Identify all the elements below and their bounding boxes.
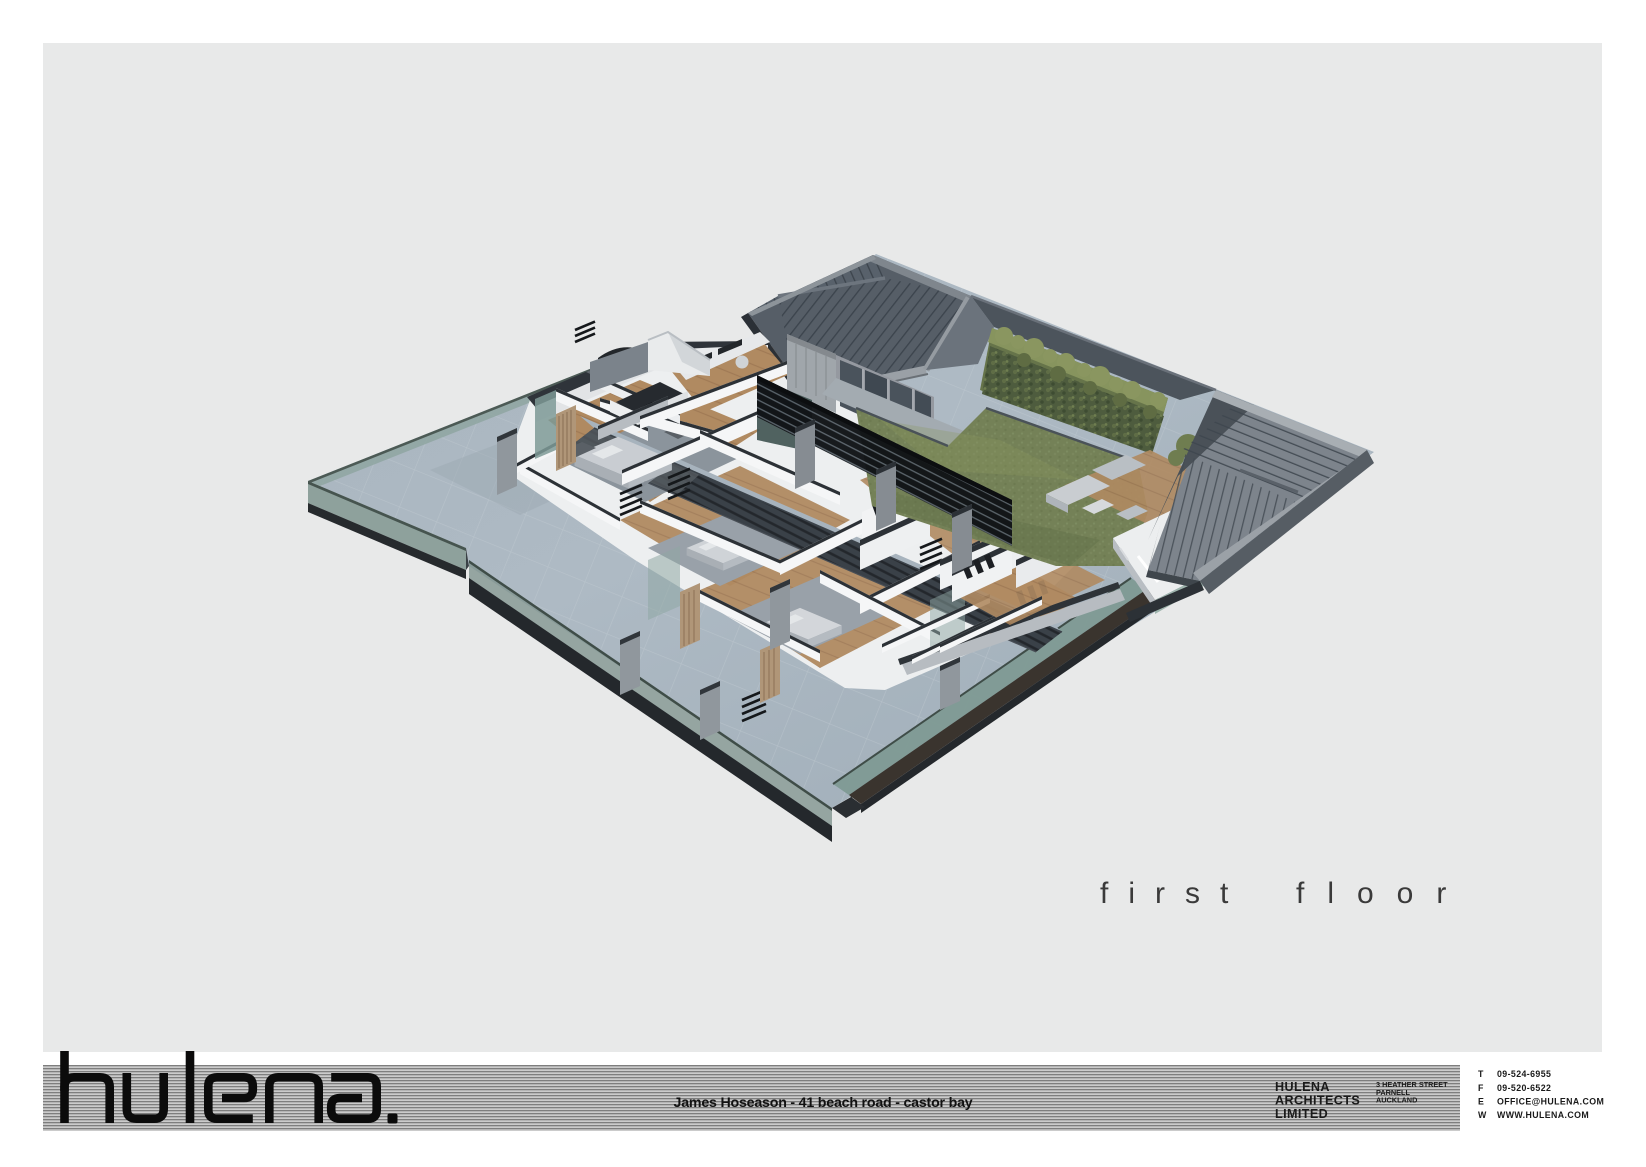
svg-text:OFFICE@HULENA.COM: OFFICE@HULENA.COM	[1497, 1097, 1604, 1107]
svg-text:E: E	[1478, 1097, 1484, 1107]
svg-text:09-524-6955: 09-524-6955	[1497, 1069, 1551, 1079]
svg-text:AUCKLAND: AUCKLAND	[1376, 1096, 1417, 1105]
svg-text:LIMITED: LIMITED	[1275, 1107, 1328, 1121]
svg-text:HULENA: HULENA	[1275, 1080, 1330, 1094]
svg-text:F: F	[1478, 1083, 1484, 1093]
svg-text:09-520-6522: 09-520-6522	[1497, 1083, 1551, 1093]
svg-text:W: W	[1478, 1110, 1487, 1120]
svg-text:T: T	[1478, 1069, 1484, 1079]
svg-text:first: first	[1100, 877, 1248, 910]
svg-text:WWW.HULENA.COM: WWW.HULENA.COM	[1497, 1110, 1589, 1120]
svg-text:James Hoseason - 41 beach road: James Hoseason - 41 beach road - castor …	[674, 1095, 973, 1111]
svg-text:floor: floor	[1296, 877, 1469, 910]
svg-text:ARCHITECTS: ARCHITECTS	[1275, 1093, 1360, 1107]
